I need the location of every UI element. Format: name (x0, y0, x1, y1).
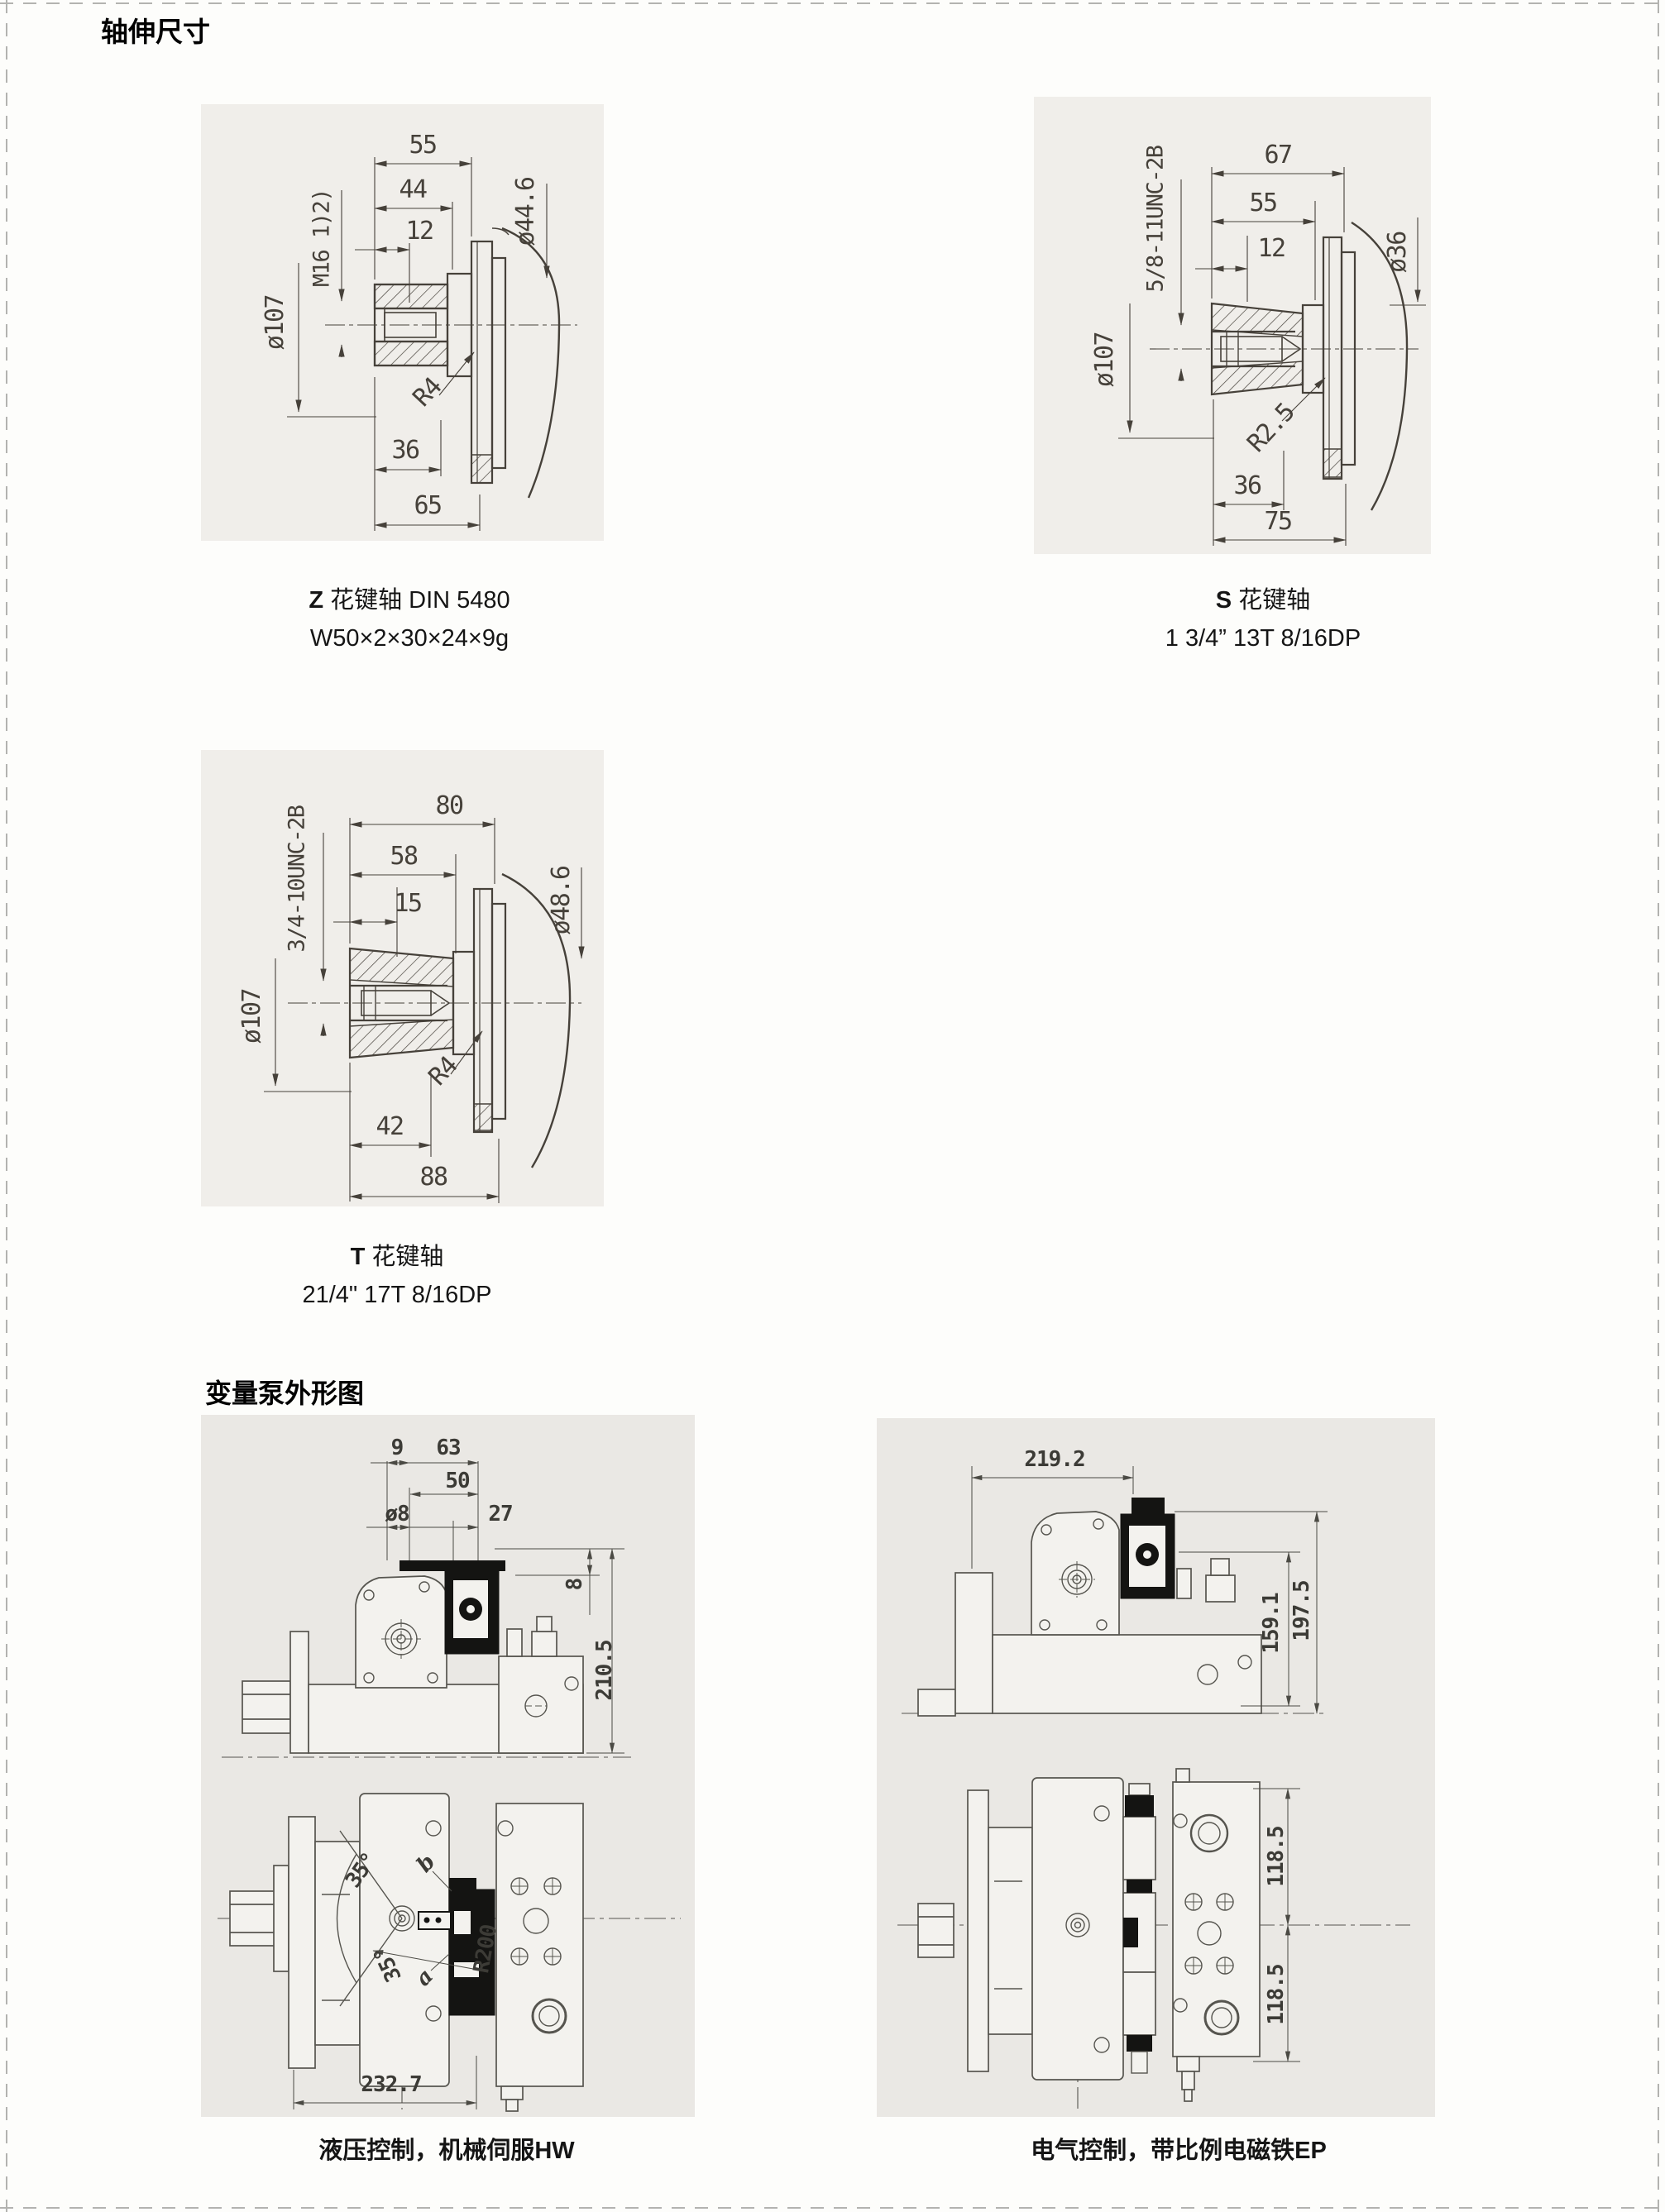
dim-s-55: 55 (1249, 191, 1276, 216)
dim-s-36: 36 (1233, 474, 1261, 499)
page-title: 轴伸尺寸 (101, 10, 210, 50)
dim-z-dia-right: ø44.6 (514, 178, 538, 246)
drawing-pump-hw: 9 63 50 ø8 27 8 210.5 35° 35° R200 b a 2… (201, 1415, 695, 2117)
page-border-top (0, 2, 1665, 4)
dim-hw-27: 27 (488, 1503, 512, 1525)
drawing-shaft-t: 80 58 15 3/4-10UNC-2B ø48.6 ø107 R4 42 8… (201, 750, 604, 1206)
caption-shaft-z-code: Z (309, 587, 323, 614)
page-border-right (1658, 0, 1659, 2212)
catalog-page: { "page": { "title": "轴伸尺寸", "section_pu… (0, 0, 1665, 2212)
dim-z-dia-left: ø107 (263, 295, 288, 350)
page-border-bottom (0, 2207, 1665, 2209)
dim-hw-210: 210.5 (594, 1640, 615, 1700)
pump-hw-line-art (201, 1415, 695, 2117)
dim-s-12: 12 (1257, 236, 1285, 261)
drawing-shaft-z: 55 44 12 M16 1)2) ø44.6 ø107 R4 36 65 (201, 104, 604, 541)
caption-shaft-s-spec: 1 3/4” 13T 8/16DP (1081, 619, 1445, 657)
caption-shaft-z-spec: W50×2×30×24×9g (227, 619, 591, 657)
dim-z-65: 65 (414, 494, 441, 518)
dim-s-75: 75 (1264, 509, 1291, 534)
drawing-shaft-s: 67 55 12 5/8-11UNC-2B ø36 ø107 R2.5 36 7… (1034, 97, 1431, 554)
dim-hw-63: 63 (436, 1437, 460, 1459)
dim-t-58: 58 (390, 844, 417, 869)
dim-t-dia-right: ø48.6 (549, 867, 574, 935)
dim-t-thread: 3/4-10UNC-2B (286, 805, 309, 952)
caption-shaft-s-name: 花键轴 (1238, 587, 1310, 614)
dim-t-dia-left: ø107 (240, 989, 265, 1044)
caption-shaft-t-spec: 21/4" 17T 8/16DP (215, 1276, 579, 1314)
dim-ep-219: 219.2 (1024, 1449, 1084, 1470)
dim-s-dia-right: ø36 (1385, 232, 1410, 273)
caption-pump-hw: 液压控制，机械伺服HW (265, 2132, 629, 2170)
dim-hw-232: 232.7 (361, 2074, 421, 2095)
caption-shaft-s: S 花键轴 1 3/4” 13T 8/16DP (1081, 581, 1445, 657)
caption-shaft-t-name: 花键轴 (371, 1244, 443, 1270)
shaft-s-line-art (1034, 97, 1431, 554)
dim-s-thread: 5/8-11UNC-2B (1145, 146, 1167, 292)
dim-ep-118-bottom: 118.5 (1265, 1964, 1287, 2024)
dim-ep-197: 197.5 (1291, 1580, 1313, 1641)
dim-s-67: 67 (1264, 143, 1291, 168)
dim-t-88: 88 (419, 1165, 447, 1190)
page-border-left (6, 0, 7, 2212)
dim-z-36: 36 (391, 438, 419, 463)
caption-pump-ep: 电气控制，带比例电磁铁EP (997, 2132, 1361, 2170)
dim-z-44: 44 (399, 178, 426, 203)
dim-s-dia-left: ø107 (1093, 332, 1117, 387)
dim-ep-118-top: 118.5 (1265, 1826, 1287, 1886)
dim-z-55: 55 (409, 133, 436, 158)
dim-z-thread: M16 1)2) (311, 189, 333, 287)
dim-hw-8: 8 (564, 1579, 586, 1591)
drawing-pump-ep: 219.2 159.1 197.5 118.5 118.5 (877, 1418, 1435, 2117)
dim-hw-dia8: ø8 (385, 1503, 409, 1525)
caption-shaft-s-code: S (1216, 587, 1232, 614)
caption-shaft-z: Z 花键轴 DIN 5480 W50×2×30×24×9g (227, 581, 591, 657)
caption-shaft-z-name: 花键轴 DIN 5480 (330, 587, 510, 614)
dim-t-42: 42 (376, 1115, 403, 1139)
dim-ep-159: 159.1 (1261, 1593, 1282, 1653)
caption-shaft-s-line1: S 花键轴 (1081, 581, 1445, 619)
dim-hw-50: 50 (445, 1470, 469, 1492)
caption-shaft-t-code: T (351, 1244, 366, 1270)
section-title-pumps: 变量泵外形图 (205, 1373, 364, 1411)
dim-t-15: 15 (394, 891, 421, 916)
caption-shaft-z-line1: Z 花键轴 DIN 5480 (227, 581, 591, 619)
dim-z-12: 12 (405, 219, 433, 244)
caption-shaft-t-line1: T 花键轴 (215, 1238, 579, 1276)
dim-t-80: 80 (435, 794, 462, 819)
pump-ep-line-art (877, 1418, 1435, 2117)
caption-shaft-t: T 花键轴 21/4" 17T 8/16DP (215, 1238, 579, 1314)
dim-hw-9: 9 (391, 1437, 404, 1459)
